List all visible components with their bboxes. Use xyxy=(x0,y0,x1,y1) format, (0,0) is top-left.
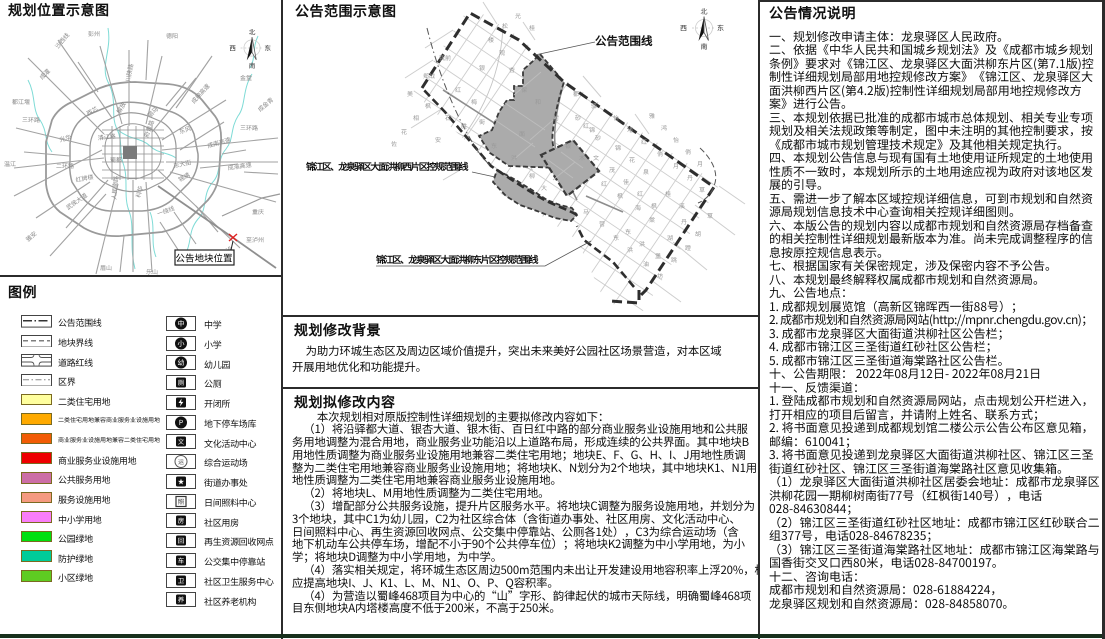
svg-text:枫: 枫 xyxy=(617,191,623,200)
svg-text:都江堰: 都江堰 xyxy=(12,97,30,106)
svg-text:文: 文 xyxy=(593,153,599,162)
svg-text:公告地块位置: 公告地块位置 xyxy=(175,251,232,265)
svg-text:安: 安 xyxy=(435,135,441,144)
svg-text:和: 和 xyxy=(535,97,541,106)
svg-text:东: 东 xyxy=(625,227,631,236)
svg-text:油: 油 xyxy=(643,259,649,268)
svg-text:面: 面 xyxy=(519,129,525,138)
svg-text:红: 红 xyxy=(455,85,461,94)
svg-text:文: 文 xyxy=(178,436,185,446)
svg-text:丹: 丹 xyxy=(681,217,687,226)
svg-text:鸿: 鸿 xyxy=(661,123,667,132)
svg-text:杏: 杏 xyxy=(509,65,515,74)
svg-text:红牌楼: 红牌楼 xyxy=(75,172,94,184)
svg-text:柳: 柳 xyxy=(529,171,535,180)
svg-text:德阳: 德阳 xyxy=(166,31,178,40)
svg-text:湖: 湖 xyxy=(667,233,673,242)
svg-text:洪: 洪 xyxy=(627,245,633,254)
svg-text:枫: 枫 xyxy=(651,201,657,210)
svg-text:都: 都 xyxy=(573,89,579,98)
svg-text:彭州: 彭州 xyxy=(88,29,100,38)
svg-text:月: 月 xyxy=(697,159,703,168)
svg-text:佳: 佳 xyxy=(623,177,629,186)
svg-text:府青路: 府青路 xyxy=(141,119,156,139)
svg-text:驿: 驿 xyxy=(591,101,597,110)
svg-text:光: 光 xyxy=(515,11,521,20)
svg-text:锦江区、龙泉驿区大面洪柳东片区控规范围线: 锦江区、龙泉驿区大面洪柳东片区控规范围线 xyxy=(376,252,539,266)
svg-text:跳: 跳 xyxy=(671,255,677,264)
svg-text:卫: 卫 xyxy=(178,575,185,585)
svg-text:清江路: 清江路 xyxy=(97,131,116,142)
svg-text:成渝高速: 成渝高速 xyxy=(227,160,252,172)
svg-text:银: 银 xyxy=(479,63,485,72)
svg-text:沙西线: 沙西线 xyxy=(53,31,71,51)
svg-text:东: 东 xyxy=(264,42,271,52)
svg-text:东: 东 xyxy=(491,141,497,150)
svg-text:坊: 坊 xyxy=(657,271,663,280)
svg-text:砂: 砂 xyxy=(575,113,581,122)
svg-text:桂: 桂 xyxy=(665,189,671,198)
svg-text:俏: 俏 xyxy=(685,147,691,156)
svg-text:花: 花 xyxy=(629,155,635,164)
svg-text:温江: 温江 xyxy=(4,159,16,168)
svg-text:郑战: 郑战 xyxy=(423,71,435,80)
svg-text:三环路: 三环路 xyxy=(22,115,40,124)
svg-text:金堂: 金堂 xyxy=(240,73,252,82)
svg-text:车: 车 xyxy=(178,555,185,565)
svg-text:蹬: 蹬 xyxy=(685,243,691,252)
svg-text:川陕路: 川陕路 xyxy=(123,63,135,82)
svg-text:怡: 怡 xyxy=(673,135,679,144)
svg-text:东: 东 xyxy=(717,24,724,34)
svg-text:观: 观 xyxy=(499,48,505,57)
svg-text:村: 村 xyxy=(553,113,559,122)
svg-text:楼: 楼 xyxy=(488,35,494,44)
svg-text:公告范围线: 公告范围线 xyxy=(595,33,653,49)
svg-text:相: 相 xyxy=(413,113,419,122)
svg-text:马: 马 xyxy=(583,207,589,216)
svg-text:西芯: 西芯 xyxy=(85,104,100,118)
svg-text:二环路: 二环路 xyxy=(56,161,74,170)
svg-text:小: 小 xyxy=(178,339,185,349)
svg-text:雅安: 雅安 xyxy=(24,229,39,244)
svg-text:成南高速: 成南高速 xyxy=(206,135,232,150)
svg-text:松: 松 xyxy=(502,21,508,30)
svg-text:花: 花 xyxy=(401,127,407,136)
svg-text:蜀都: 蜀都 xyxy=(110,155,122,164)
svg-text:科华: 科华 xyxy=(133,185,145,199)
svg-text:中: 中 xyxy=(178,319,185,329)
svg-text:大: 大 xyxy=(541,183,547,192)
svg-text:我前: 我前 xyxy=(439,53,451,62)
svg-text:洪: 洪 xyxy=(511,153,517,162)
svg-text:至泸州: 至泸州 xyxy=(246,235,264,244)
svg-text:房: 房 xyxy=(178,515,185,525)
svg-text:幼: 幼 xyxy=(178,358,185,368)
svg-text:锦: 锦 xyxy=(615,143,621,152)
svg-text:运: 运 xyxy=(178,457,184,466)
svg-text:厕: 厕 xyxy=(178,377,185,387)
svg-text:北: 北 xyxy=(249,27,256,37)
svg-text:茂: 茂 xyxy=(609,165,615,174)
svg-text:西: 西 xyxy=(229,42,236,52)
svg-text:北: 北 xyxy=(701,7,708,17)
svg-text:照: 照 xyxy=(178,496,185,506)
svg-text:雅: 雅 xyxy=(649,111,655,120)
svg-text:街: 街 xyxy=(479,117,485,126)
svg-text:眉山: 眉山 xyxy=(100,263,112,272)
svg-text:南: 南 xyxy=(701,42,708,52)
svg-text:胡: 胡 xyxy=(695,229,701,238)
svg-text:梅: 梅 xyxy=(471,97,477,106)
svg-text:棠: 棠 xyxy=(649,215,655,224)
svg-text:美: 美 xyxy=(407,89,413,98)
svg-text:俏: 俏 xyxy=(657,149,663,158)
svg-text:锦: 锦 xyxy=(589,125,595,134)
svg-text:营: 营 xyxy=(599,219,605,228)
svg-text:木: 木 xyxy=(579,153,585,162)
svg-text:草: 草 xyxy=(707,211,713,220)
svg-text:海: 海 xyxy=(635,203,641,212)
svg-text:红: 红 xyxy=(641,137,647,146)
svg-text:月: 月 xyxy=(673,161,679,170)
svg-text:养: 养 xyxy=(178,594,185,604)
svg-text:★: ★ xyxy=(178,476,185,486)
svg-text:怡: 怡 xyxy=(613,113,619,122)
svg-text:草: 草 xyxy=(699,185,705,194)
svg-text:枫: 枫 xyxy=(425,101,431,110)
svg-text:石: 石 xyxy=(445,113,451,122)
svg-text:银: 银 xyxy=(565,141,571,150)
svg-text:东: 东 xyxy=(613,233,619,242)
svg-text:洪: 洪 xyxy=(639,239,645,248)
svg-text:桂: 桂 xyxy=(529,23,535,32)
svg-text:人民南路: 人民南路 xyxy=(109,175,120,200)
svg-text:重庆: 重庆 xyxy=(252,207,264,216)
svg-text:西: 西 xyxy=(680,24,687,34)
svg-text:红: 红 xyxy=(637,189,643,198)
svg-text:三环路: 三环路 xyxy=(240,123,258,132)
svg-text:保: 保 xyxy=(521,85,527,94)
svg-text:佐: 佐 xyxy=(391,139,397,148)
svg-text:溪: 溪 xyxy=(679,201,685,210)
svg-text:红: 红 xyxy=(601,179,607,188)
svg-text:回: 回 xyxy=(178,535,185,545)
svg-text:胜: 胜 xyxy=(461,121,467,130)
svg-text:砂: 砂 xyxy=(595,133,601,142)
svg-text:锦江区、龙泉驿区大面洪柳西片区控规范围线: 锦江区、龙泉驿区大面洪柳西片区控规范围线 xyxy=(306,159,469,173)
svg-text:泉: 泉 xyxy=(643,167,649,176)
svg-text:堡: 堡 xyxy=(655,251,661,260)
svg-text:南: 南 xyxy=(249,60,256,70)
svg-text:成金青: 成金青 xyxy=(256,95,276,113)
svg-text:一绕线: 一绕线 xyxy=(156,203,176,218)
svg-text:P: P xyxy=(179,418,184,428)
svg-text:丹: 丹 xyxy=(687,173,693,182)
svg-text:堵: 堵 xyxy=(627,125,633,134)
